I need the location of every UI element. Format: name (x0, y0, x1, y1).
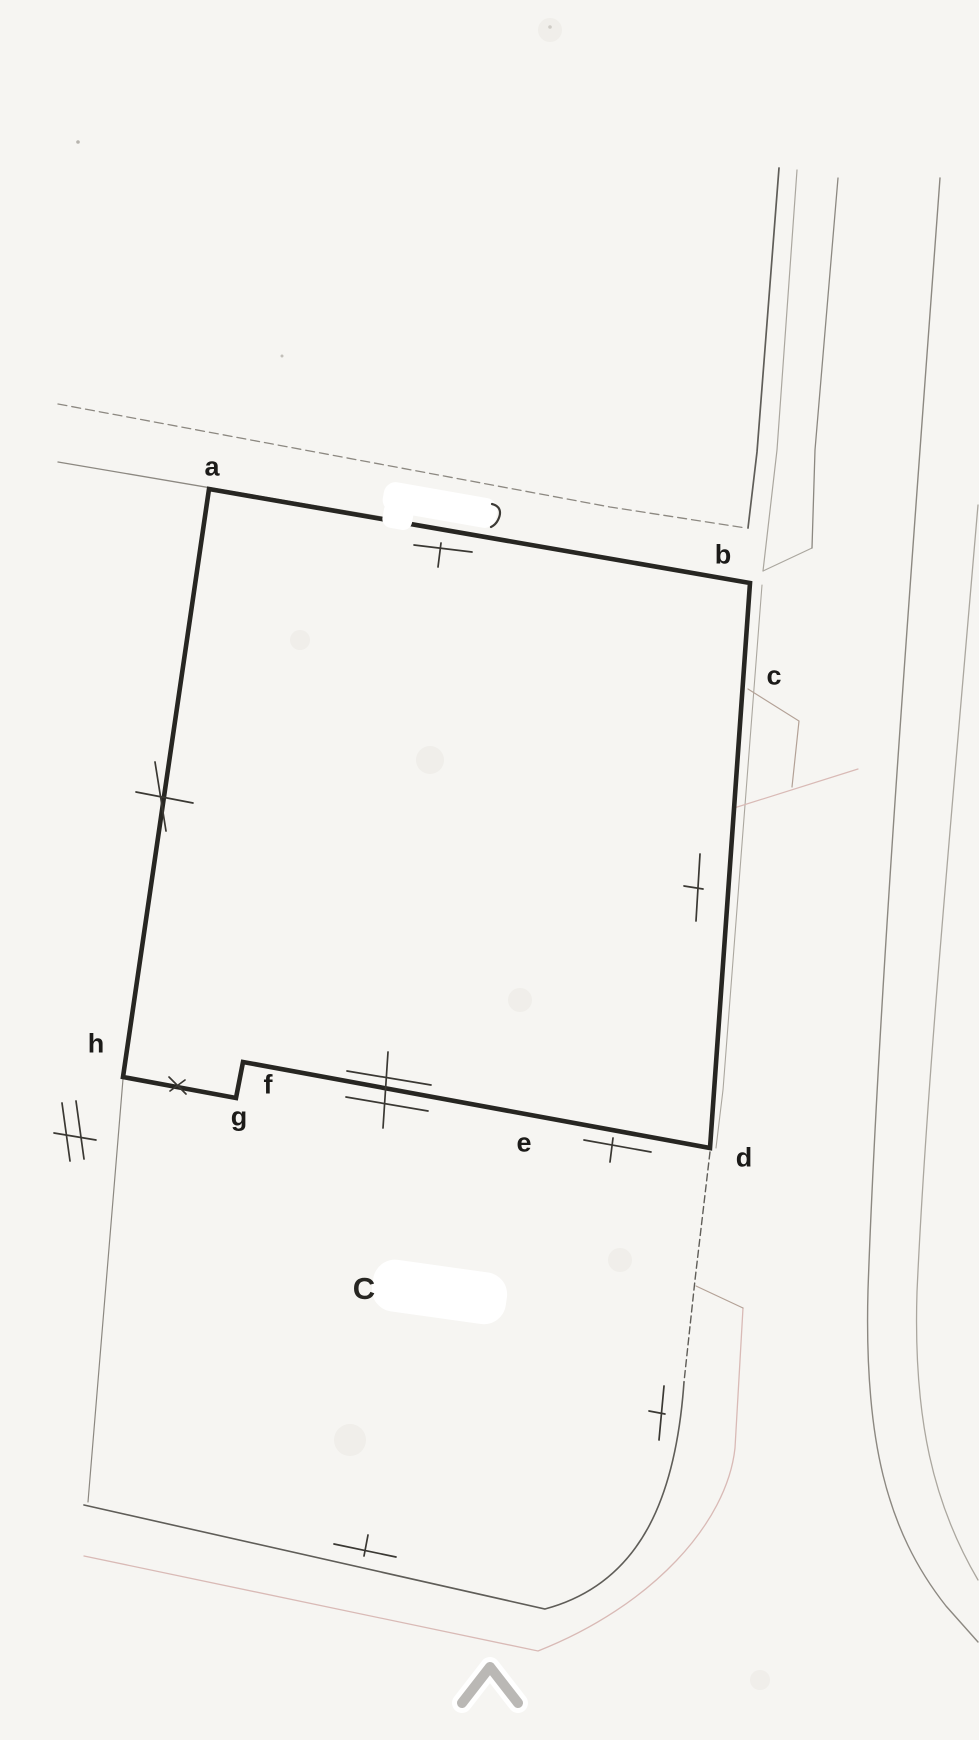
boundary-mark-right-edge (684, 854, 703, 921)
vertex-label-g: g (231, 1102, 248, 1133)
boundary-extension-below-h (88, 1079, 123, 1502)
street-lower-edge-pink (84, 1308, 743, 1651)
survey-marks (54, 543, 703, 1557)
vertex-label-a: a (204, 452, 219, 483)
chevron-up-icon[interactable] (462, 1667, 518, 1703)
erased-label-fragment: C (353, 1271, 375, 1307)
boundary-mark-top-edge (414, 543, 472, 567)
road-edge-beside-boundary (716, 585, 762, 1148)
parcel-boundary (123, 489, 750, 1148)
vertex-label-d: d (736, 1143, 753, 1174)
road-edge-top-2 (763, 170, 797, 571)
boundary-mark-bottom-street (334, 1535, 396, 1557)
vertex-label-h: h (88, 1029, 105, 1060)
sidewalk-corner-diagonal (696, 1286, 743, 1308)
vertex-label-b: b (715, 540, 732, 571)
sidewalk-strip-close (763, 548, 812, 571)
vertex-label-e: e (516, 1128, 531, 1159)
scan-smudges (290, 18, 770, 1690)
boundary-mark-ed-segment (584, 1138, 651, 1162)
whiteout-bottom (369, 1257, 510, 1327)
pencil-line-mid-right (734, 769, 858, 808)
sketch-drawing (0, 0, 979, 1740)
road-edge-top-3 (812, 178, 838, 548)
scanned-survey-sketch: a b c d e f g h C (0, 0, 979, 1740)
vertex-label-f: f (264, 1070, 273, 1101)
parcel-notch-near-c (748, 689, 799, 787)
road-edge-right-long-2 (917, 505, 978, 1580)
scan-specks (76, 25, 552, 357)
vertex-label-c: c (766, 661, 781, 692)
boundary-mark-left-margin (54, 1101, 96, 1161)
boundary-mark-lower-right (649, 1386, 665, 1440)
whiteout-patches (369, 480, 510, 1327)
boundary-extension-below-d (684, 1152, 710, 1382)
